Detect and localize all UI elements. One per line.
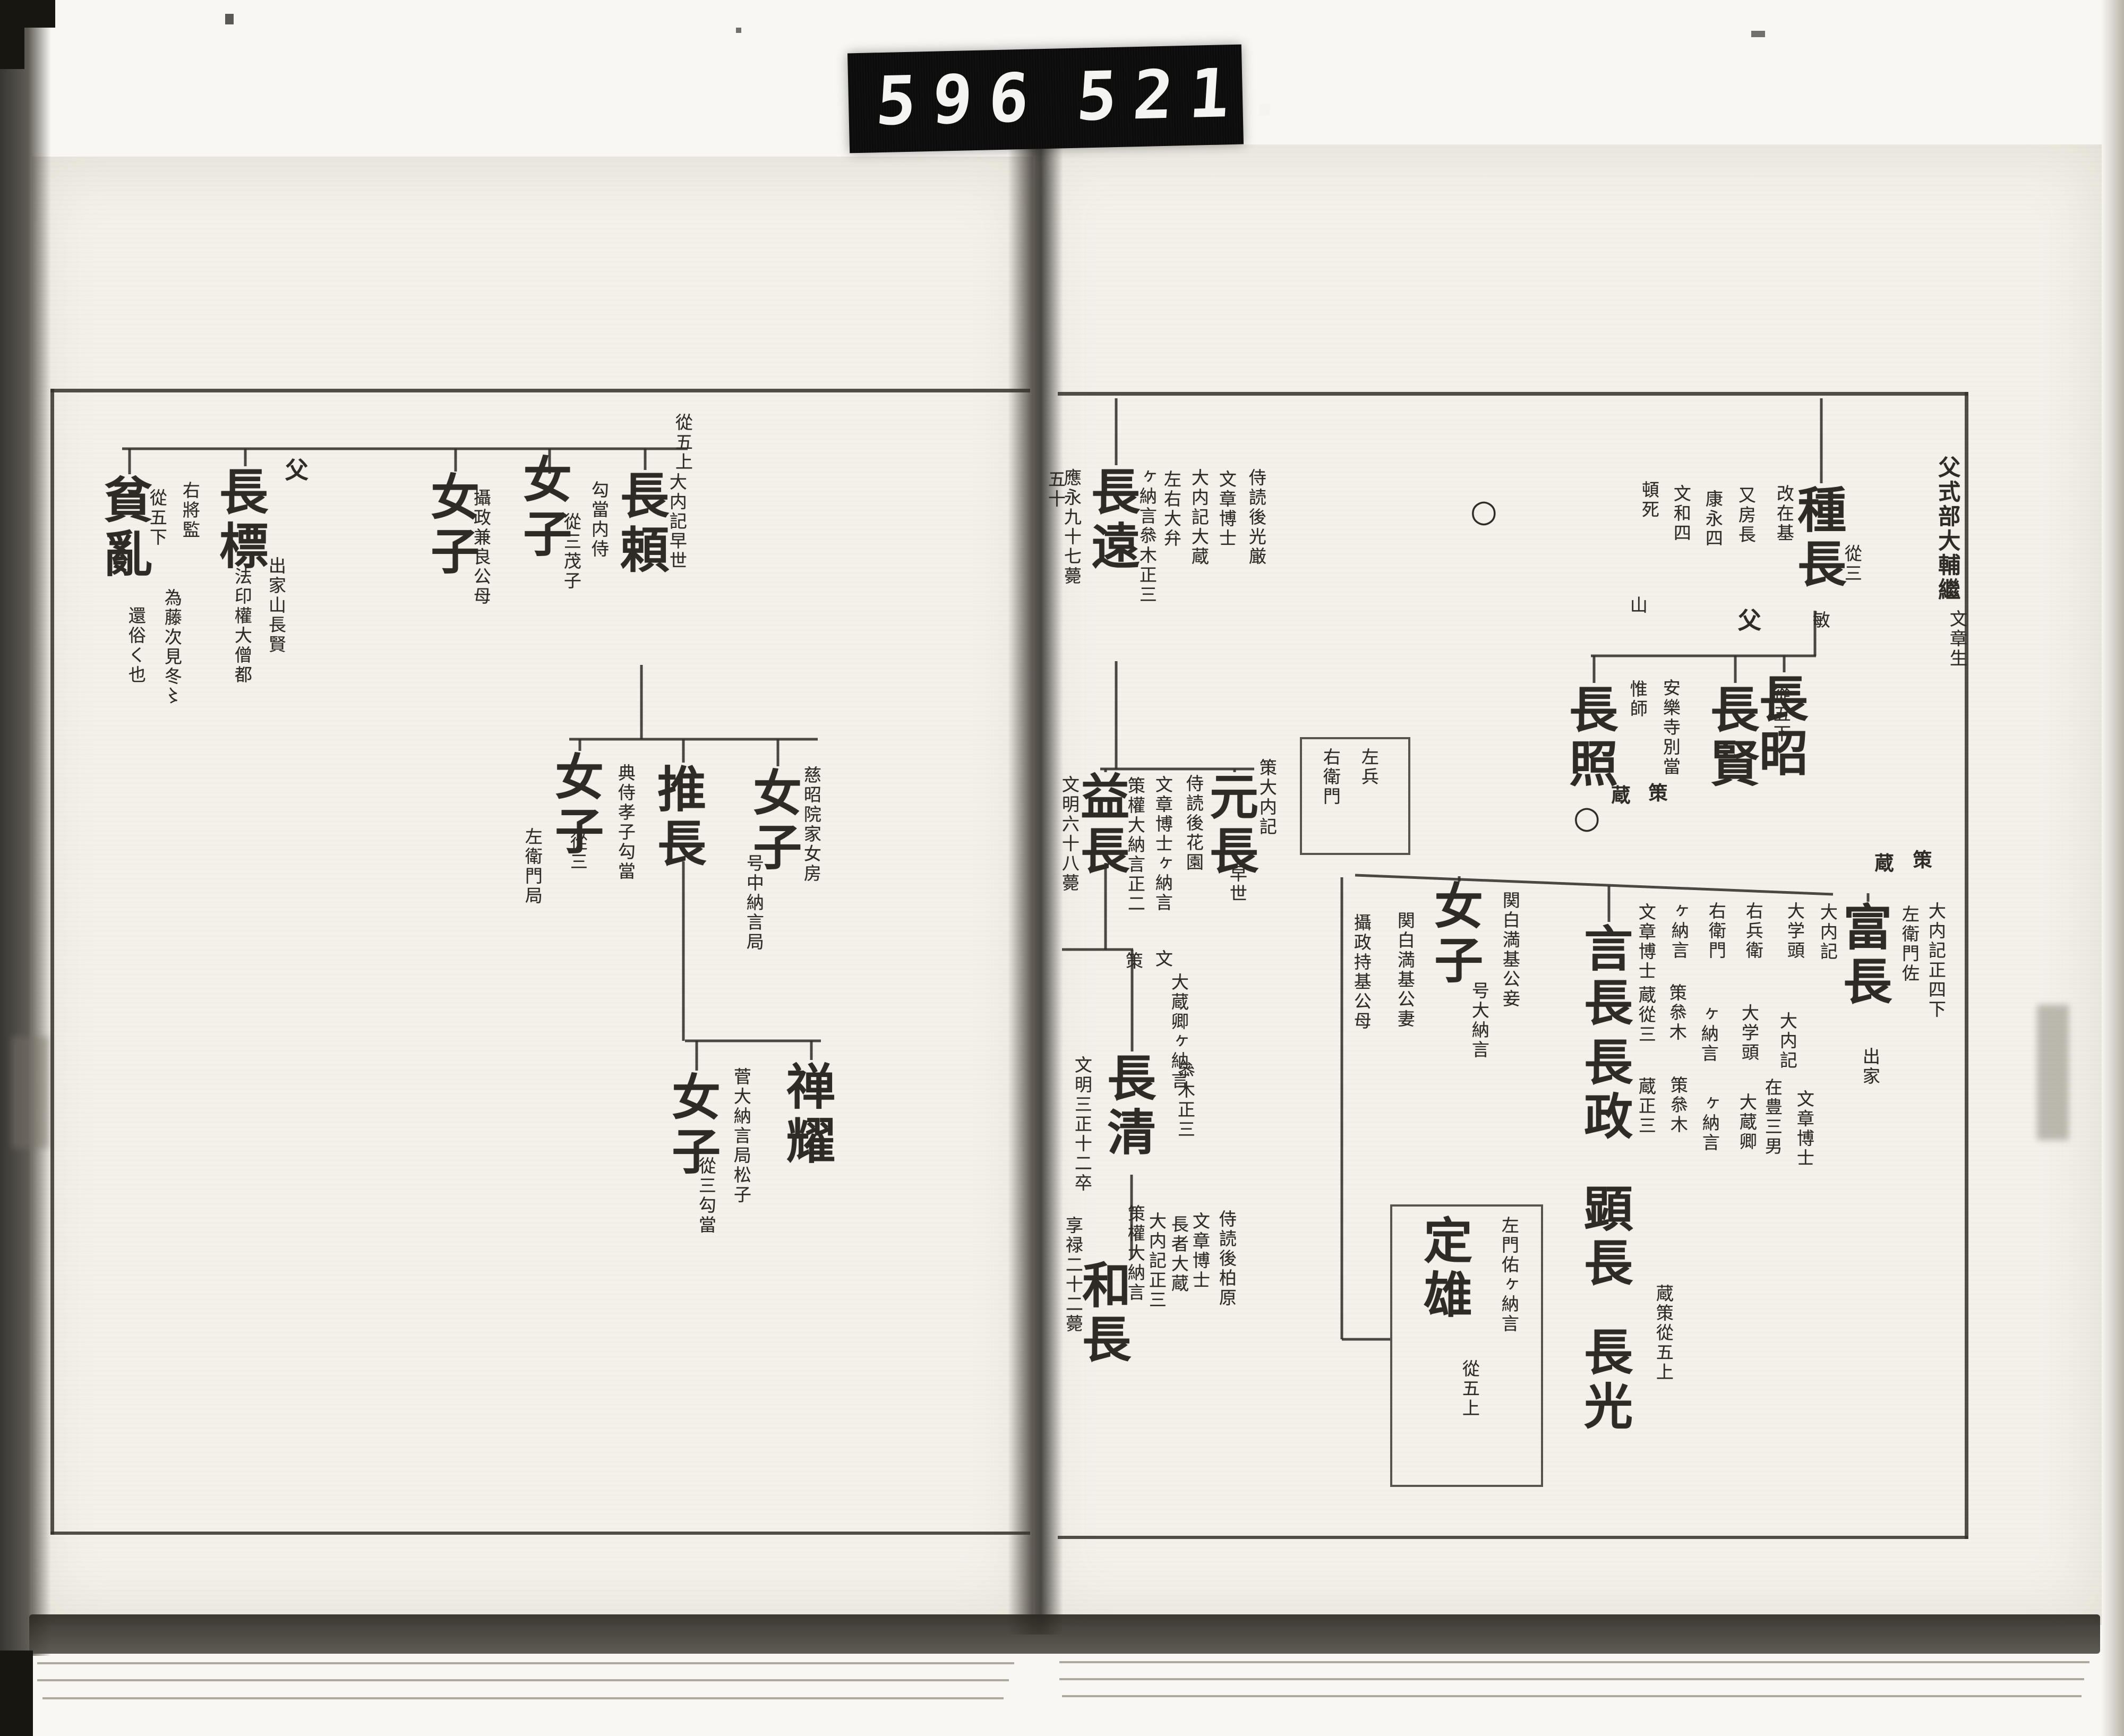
saku-mark: 策 xyxy=(1911,850,1930,871)
person-annotation: 大学頭 xyxy=(1740,1004,1758,1063)
person-annotation: 從三 xyxy=(568,833,586,872)
person-annotation: 叅木正三 xyxy=(1176,1061,1194,1140)
person-name: 女子 xyxy=(425,472,476,580)
person-annotation: 策權大納言 xyxy=(1126,1204,1144,1303)
person-annotation: 大学頭 xyxy=(1785,902,1803,961)
person-annotation: 策叅木 xyxy=(1668,1076,1686,1135)
person-name: 長頼 xyxy=(615,470,666,578)
person-annotation: 典侍孝子勾當 xyxy=(616,764,634,882)
person-annotation: 文和四 xyxy=(1672,484,1690,543)
person-annotation: 蔵策從五上 xyxy=(1654,1284,1672,1382)
person-annotation: 文明六十八薨 xyxy=(1060,775,1078,893)
person-annotation: 侍読後光厳 xyxy=(1247,468,1265,567)
person-annotation: 左右大弁 xyxy=(1162,470,1180,549)
person-annotation: 文 xyxy=(1153,950,1171,969)
person-annotation: 大蔵卿 xyxy=(1737,1093,1755,1152)
person-annotation: 大内記 xyxy=(1818,903,1836,962)
person-annotation: 出家 xyxy=(1861,1047,1879,1087)
person-annotation: ヶ納言 xyxy=(1699,1005,1717,1064)
person-name: 元長 xyxy=(1204,771,1255,879)
person-annotation: 慈昭院家女房 xyxy=(802,766,820,884)
person-annotation: 号大納言 xyxy=(1470,981,1488,1060)
person-annotation: 策叅木 xyxy=(1667,984,1685,1042)
person-annotation: 大内記正四下 xyxy=(1926,902,1945,1020)
person-annotation: 関白満基公妾 xyxy=(1501,891,1519,1009)
person-annotation: 從五下 xyxy=(1771,685,1789,744)
person-annotation: 策大内記 xyxy=(1257,758,1275,837)
person-annotation: ヶ納言 xyxy=(1669,902,1688,961)
genealogy-ink-box xyxy=(1300,737,1410,855)
lineage-circle-mark: ○ xyxy=(1468,493,1500,531)
person-annotation: 五十 xyxy=(1046,470,1064,509)
person-annotation: 右衛門 xyxy=(1707,902,1725,961)
person-annotation: 從三茂子 xyxy=(562,512,580,591)
person-annotation: 山 xyxy=(1628,596,1646,615)
person-annotation: 從五下 xyxy=(148,489,166,548)
person-annotation: 惟師 xyxy=(1628,680,1646,719)
person-annotation: 文章博士 xyxy=(1191,1212,1209,1290)
person-annotation: 安樂寺別當 xyxy=(1661,679,1679,777)
person-annotation: 策權大納言正二 xyxy=(1126,776,1144,914)
person-name: 長照 xyxy=(1564,684,1615,792)
father-label: 父 xyxy=(282,458,306,483)
person-annotation: 享禄二十二薨 xyxy=(1064,1216,1082,1334)
person-name: 益長 xyxy=(1075,771,1126,879)
saku-mark: 策 xyxy=(1646,783,1666,804)
person-name: 種長 xyxy=(1792,484,1843,593)
person-annotation: 文章生 xyxy=(1948,610,1966,669)
person-annotation: 文章博士 xyxy=(1637,903,1655,981)
person-annotation: 策 xyxy=(1124,952,1142,971)
father-label: 父 xyxy=(1735,608,1759,634)
person-name: 女子 xyxy=(1429,880,1480,989)
person-annotation: 菅大納言局松子 xyxy=(732,1067,750,1205)
person-annotation: 右兵衛 xyxy=(1744,902,1762,961)
person-annotation: 文章博士ヶ納言 xyxy=(1153,775,1171,913)
person-name: 推長 xyxy=(652,764,703,872)
scanned-genealogy-spread: 596 521. 長頼從五上大内記早世女子勾當内侍從三茂子女子攝政兼良公母長標出… xyxy=(0,0,2124,1736)
person-annotation: 攝政持基公母 xyxy=(1352,913,1370,1031)
person-name: 長遠 xyxy=(1086,466,1137,575)
person-name: 貧亂 xyxy=(98,474,149,583)
person-name: 富長 xyxy=(1838,902,1889,1010)
person-annotation: 康永四 xyxy=(1703,490,1722,549)
person-annotation: ヶ納言叅木正三 xyxy=(1137,467,1155,605)
person-annotation: 從五上 xyxy=(673,413,691,472)
person-name: 和長 xyxy=(1077,1260,1128,1368)
lineage-circle-mark: ○ xyxy=(1571,799,1603,837)
person-name: 長賢 xyxy=(1705,684,1756,792)
person-annotation: 敏 xyxy=(1811,611,1829,630)
person-annotation: 侍読後花園 xyxy=(1184,774,1202,873)
person-annotation: 早世 xyxy=(1228,865,1246,904)
ancestor-column: 父式部大輔繼 xyxy=(1936,456,1959,602)
person-name: 長光 xyxy=(1579,1327,1630,1435)
person-annotation: 大内記大蔵 xyxy=(1189,468,1207,567)
person-annotation: 大内記正三 xyxy=(1147,1212,1165,1310)
person-annotation: 長者大蔵 xyxy=(1169,1215,1187,1294)
kura-mark: 蔵 xyxy=(1609,785,1629,806)
person-annotation: ヶ納言 xyxy=(1700,1094,1718,1153)
person-annotation: 大内記 xyxy=(1778,1012,1796,1071)
person-annotation: 還俗く也 xyxy=(126,606,144,685)
person-annotation: 頓死 xyxy=(1640,481,1658,520)
genealogy-ink-box xyxy=(1390,1204,1543,1487)
person-annotation: 侍読後柏原 xyxy=(1217,1210,1235,1308)
person-annotation: 蔵從三 xyxy=(1637,986,1655,1045)
person-annotation: 從三勾當 xyxy=(697,1157,715,1235)
person-annotation: 又房長 xyxy=(1736,486,1754,545)
person-name: 言長 xyxy=(1579,923,1630,1031)
person-annotation: 改在基 xyxy=(1775,484,1793,543)
person-annotation: 文章博士 xyxy=(1795,1090,1813,1168)
person-name: 長標 xyxy=(214,466,265,575)
person-annotation: 大内記早世 xyxy=(667,473,686,571)
person-name: 顕長 xyxy=(1579,1183,1630,1292)
person-annotation: 為藤次見冬〻 xyxy=(162,588,181,706)
person-annotation: 左衛門佐 xyxy=(1900,905,1918,984)
person-name: 長政 xyxy=(1579,1037,1630,1145)
person-annotation: 号中納言局 xyxy=(744,854,763,952)
person-annotation: 法印權大僧都 xyxy=(233,567,251,685)
person-annotation: 文明三正十二卒 xyxy=(1073,1056,1091,1193)
person-annotation: 攝政兼良公母 xyxy=(472,489,490,606)
person-annotation: 右將監 xyxy=(181,481,199,540)
person-annotation: 文章博士 xyxy=(1217,470,1235,549)
person-annotation: 関白満基公妻 xyxy=(1395,911,1414,1029)
person-annotation: 在豊三男 xyxy=(1763,1078,1781,1157)
person-annotation: 左衛門局 xyxy=(523,827,541,906)
kura-mark: 蔵 xyxy=(1872,853,1892,874)
person-annotation: 出家山長賢 xyxy=(267,557,285,655)
person-annotation: 從三 xyxy=(1843,544,1861,584)
person-name: 禅耀 xyxy=(781,1061,832,1169)
person-annotation: 勾當内侍 xyxy=(589,481,607,559)
person-name: 長清 xyxy=(1102,1053,1153,1161)
person-annotation: 蔵正三 xyxy=(1637,1077,1655,1136)
